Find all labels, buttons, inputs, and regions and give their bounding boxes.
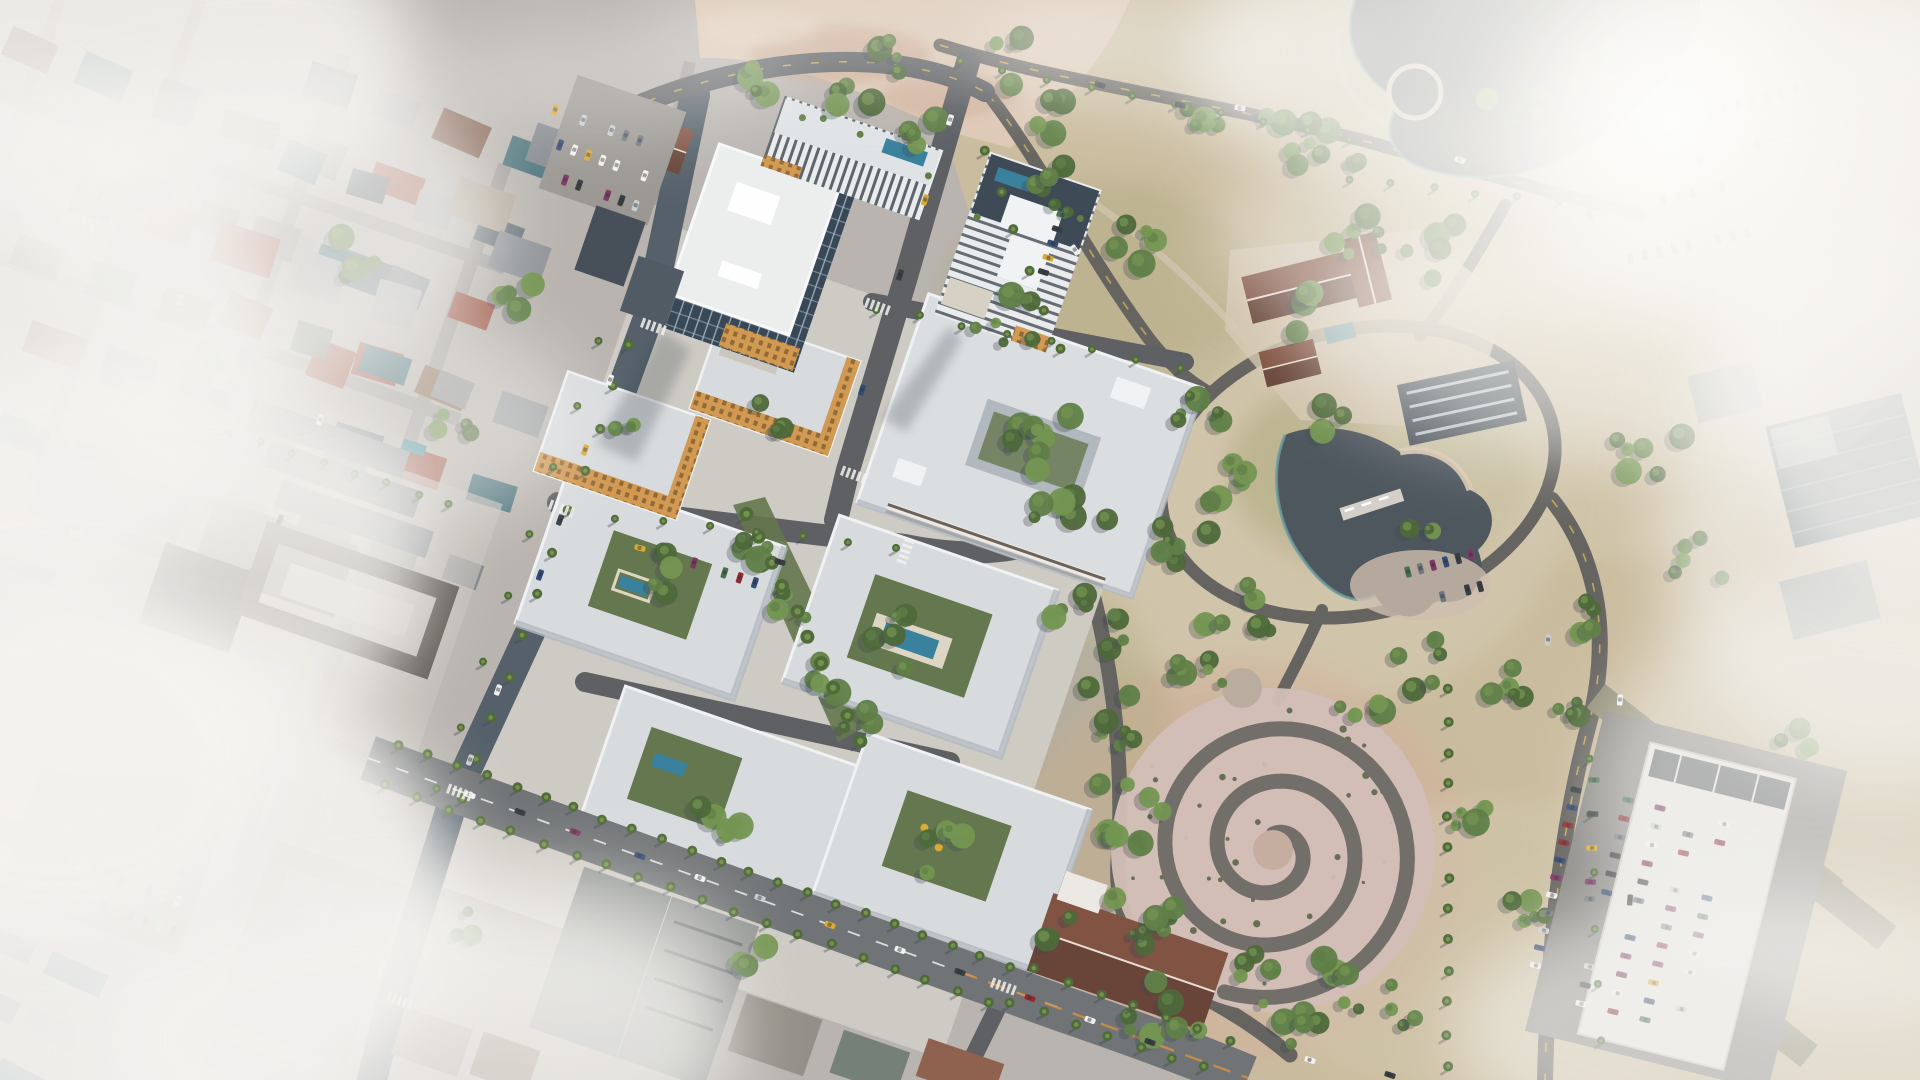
- aerial-render: [0, 0, 1920, 1080]
- aerial-scene: [0, 0, 1920, 1080]
